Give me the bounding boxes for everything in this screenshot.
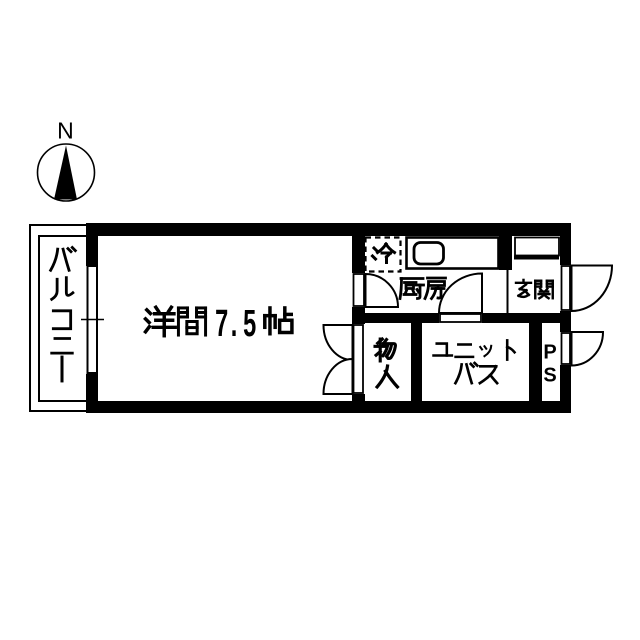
svg-text:5: 5 [243,301,256,344]
svg-text:S: S [543,365,556,387]
svg-text:N: N [57,118,74,144]
svg-text:P: P [543,342,556,364]
svg-text:.: . [231,301,238,344]
svg-text:7: 7 [215,301,228,344]
